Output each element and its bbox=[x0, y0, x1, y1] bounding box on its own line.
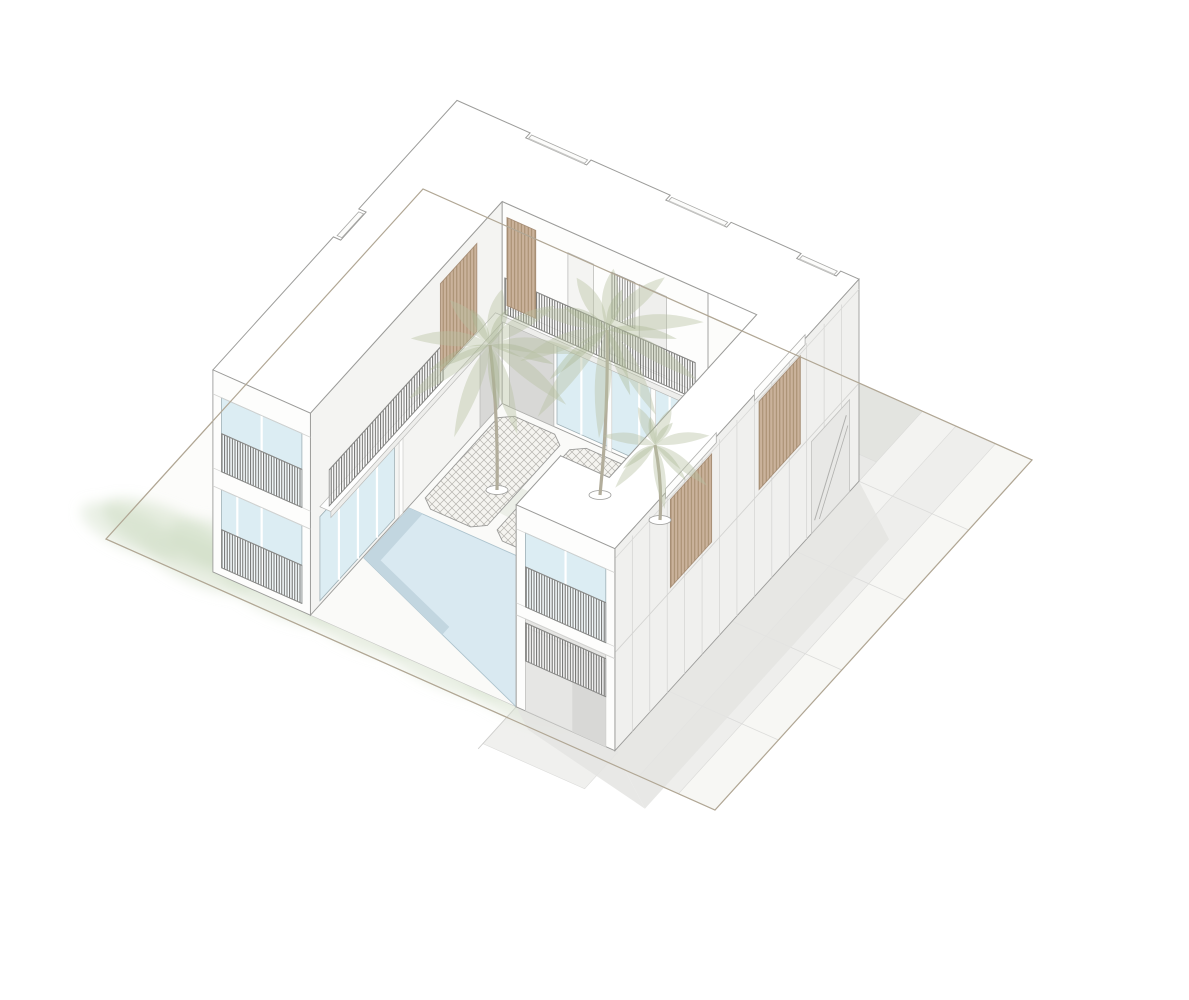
drawing-canvas bbox=[0, 0, 1189, 1000]
facade-left-wing bbox=[213, 370, 311, 615]
facade-front-block bbox=[516, 505, 615, 751]
axonometric-drawing bbox=[0, 0, 1189, 1000]
